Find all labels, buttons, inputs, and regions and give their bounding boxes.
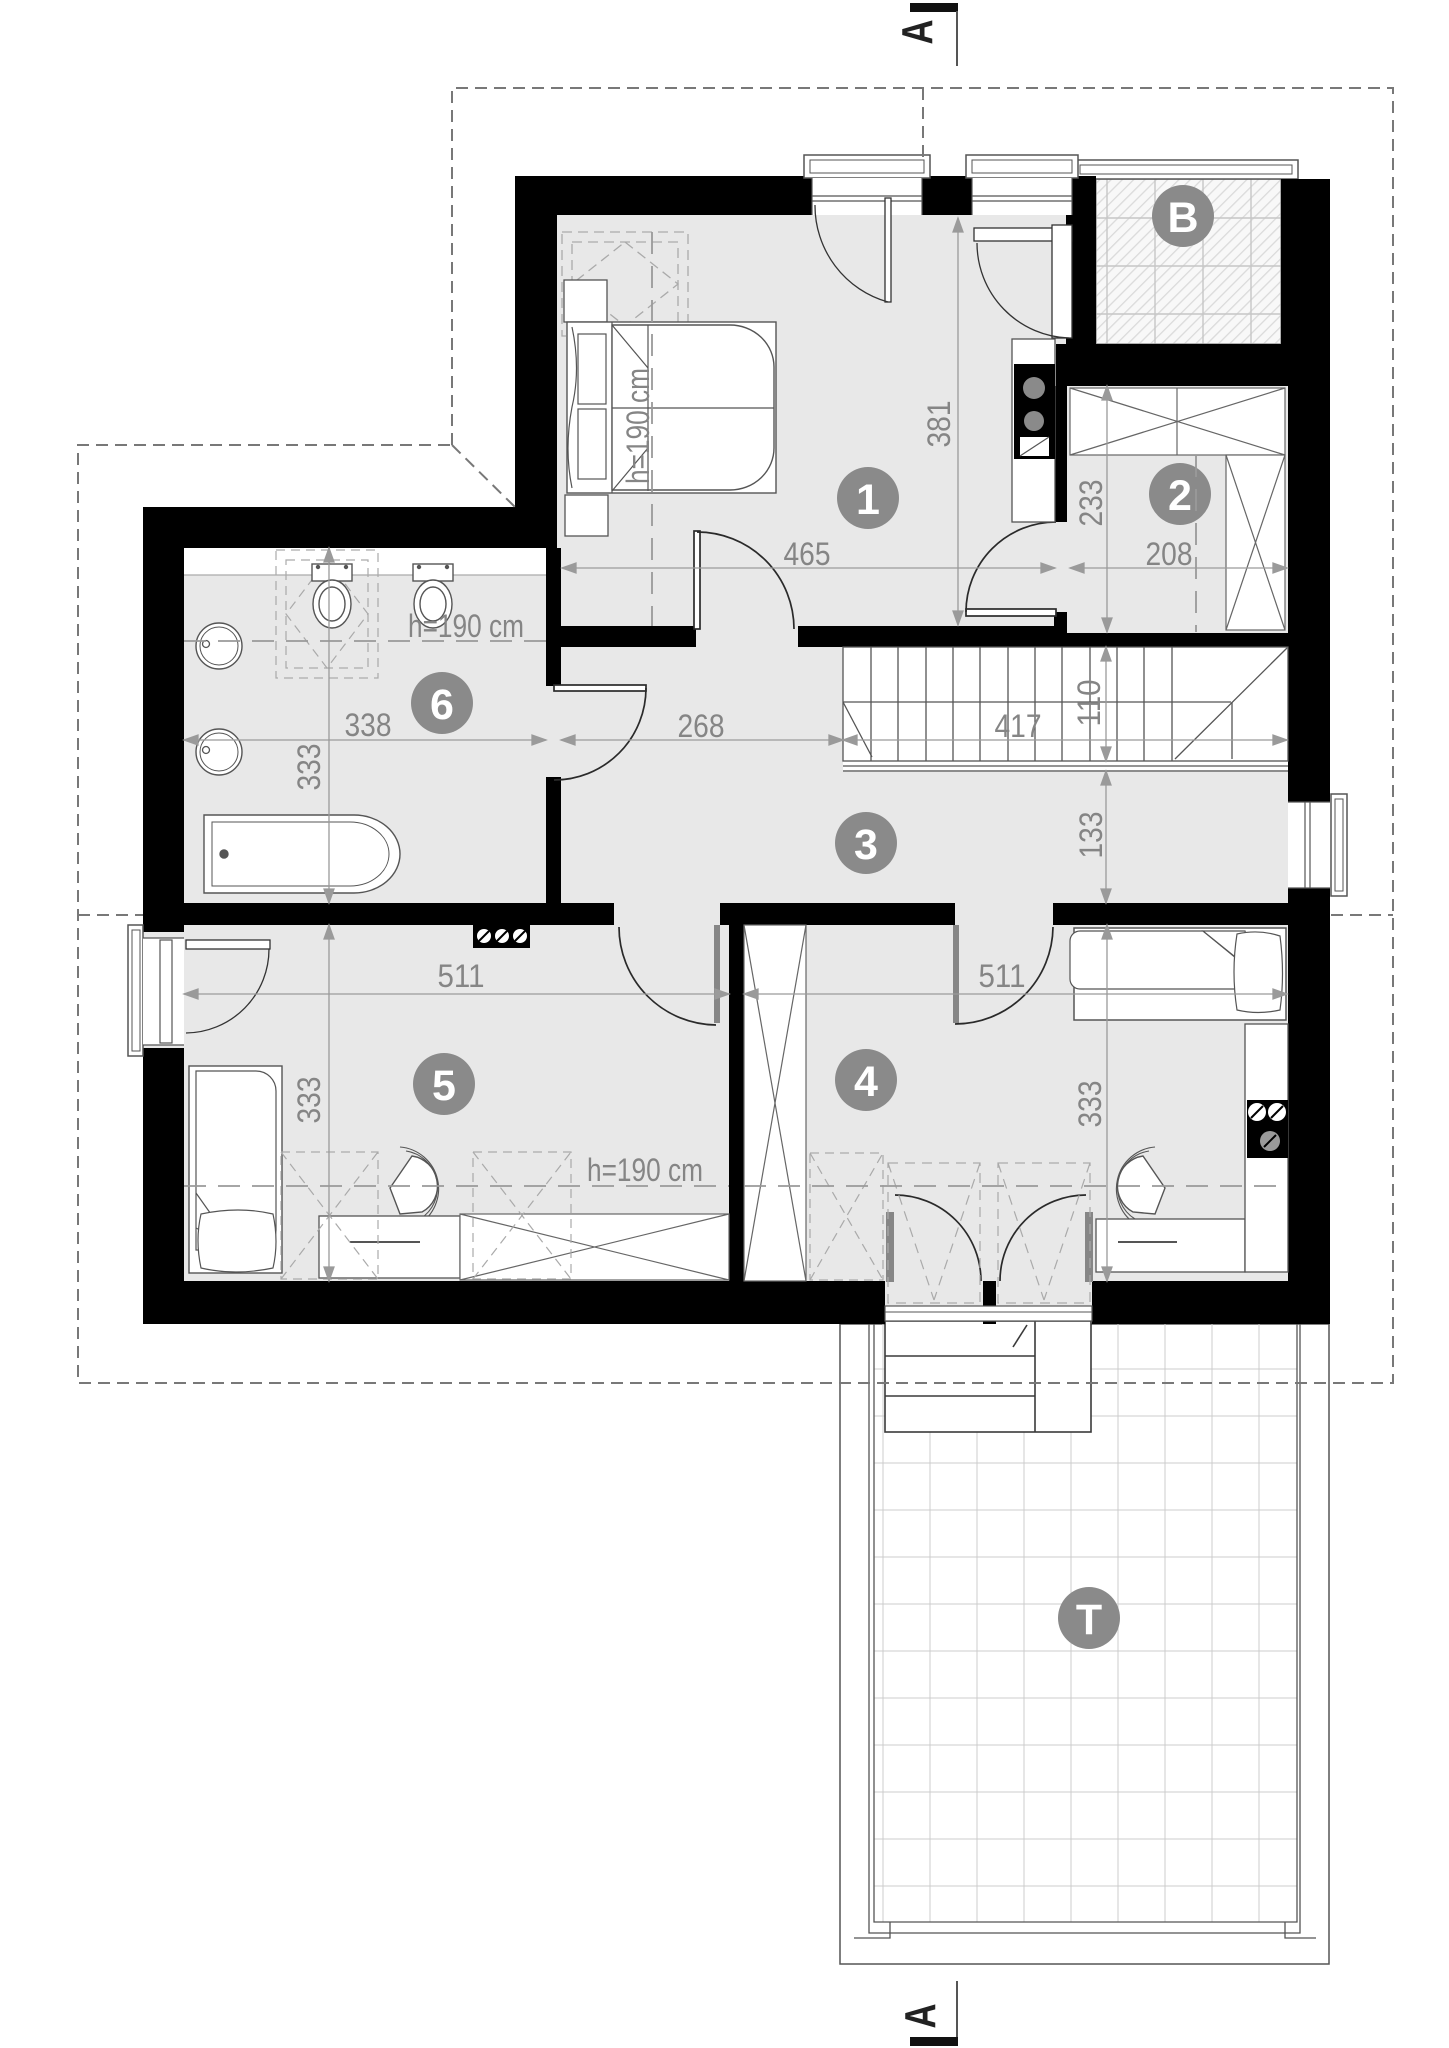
svg-text:3: 3 [854, 821, 878, 869]
svg-text:333: 333 [291, 744, 327, 791]
svg-text:208: 208 [1146, 536, 1193, 572]
svg-text:T: T [1076, 1596, 1102, 1644]
svg-text:h=190 cm: h=190 cm [587, 1152, 703, 1188]
svg-text:381: 381 [921, 401, 957, 448]
svg-text:A: A [893, 20, 942, 45]
svg-text:110: 110 [1071, 680, 1107, 727]
svg-text:6: 6 [430, 681, 454, 729]
svg-text:A: A [896, 2004, 945, 2029]
svg-text:4: 4 [854, 1058, 878, 1106]
svg-text:h=190 cm: h=190 cm [408, 608, 524, 644]
svg-text:511: 511 [979, 958, 1026, 994]
svg-text:h=190 cm: h=190 cm [620, 368, 656, 484]
svg-text:417: 417 [995, 708, 1042, 744]
svg-text:2: 2 [1168, 472, 1192, 520]
svg-text:268: 268 [678, 708, 725, 744]
svg-text:B: B [1167, 194, 1198, 242]
svg-text:465: 465 [784, 536, 831, 572]
svg-text:333: 333 [1072, 1081, 1108, 1128]
svg-text:1: 1 [856, 476, 880, 524]
svg-text:338: 338 [345, 707, 392, 743]
svg-text:133: 133 [1073, 812, 1109, 859]
svg-text:511: 511 [438, 958, 485, 994]
svg-text:5: 5 [432, 1062, 456, 1110]
svg-text:233: 233 [1073, 480, 1109, 527]
svg-text:333: 333 [291, 1077, 327, 1124]
